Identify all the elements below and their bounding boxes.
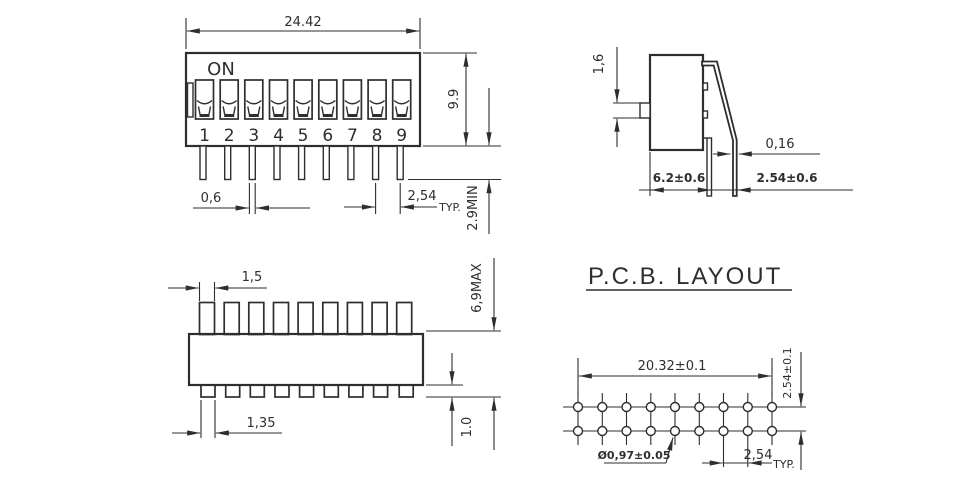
switch-actuator: [270, 80, 288, 119]
pcb-hole: [671, 427, 680, 436]
pin-tab: [399, 385, 413, 397]
pin: [200, 146, 206, 180]
actuator-tab: [249, 303, 264, 335]
side-notch: [703, 111, 708, 118]
switch-sliders: [196, 80, 411, 119]
dimension-pin-tab-height: 1.0: [426, 353, 475, 446]
dim-body-depth-label: 6.2±0.6: [653, 171, 706, 185]
pin: [274, 146, 280, 180]
position-number: 2: [224, 126, 235, 146]
switch-body-top: [189, 334, 423, 385]
dimension-pin-thickness: 0,16: [713, 137, 820, 154]
dim-actuator-width-label: 1,5: [242, 270, 263, 285]
dimension-row-pitch: 2.54±0.1: [780, 347, 806, 470]
dim-row-pitch-label: 2.54±0.1: [781, 347, 794, 398]
actuator-tab: [200, 303, 215, 335]
pin: [397, 146, 403, 180]
switch-actuator: [393, 80, 411, 119]
dim-body-height-label: 9.9: [447, 89, 462, 110]
actuator-tab: [298, 303, 313, 335]
pcb-hole: [574, 427, 583, 436]
switch-actuator: [319, 80, 337, 119]
dim-pin-thickness-label: 0,16: [766, 137, 795, 152]
pcb-hole: [598, 427, 607, 436]
switch-actuator: [343, 80, 361, 119]
dimension-pin-pitch: 2,54 TYP.: [344, 183, 461, 214]
position-number: 3: [248, 126, 259, 146]
dim-pin-pitch-label: 2,54: [408, 189, 437, 204]
pcb-hole: [622, 403, 631, 412]
straight-pin: [707, 138, 712, 196]
actuator-tab: [397, 303, 412, 335]
pcb-hole: [646, 427, 655, 436]
pin: [299, 146, 305, 180]
actuator-side: [640, 103, 650, 118]
pcb-title-pcb: P.C.B.: [588, 263, 666, 290]
polarity-notch: [188, 83, 194, 117]
pin-tab: [300, 385, 314, 397]
dimension-actuator-width: 1,5: [168, 270, 267, 301]
pin-tab: [374, 385, 388, 397]
dim-hole-pitch-qualifier: TYP.: [772, 458, 795, 471]
bottom-pin-tabs: [201, 385, 413, 397]
position-number: 5: [298, 126, 309, 146]
pcb-layout: P.C.B. LAYOUT 20.32±0.1: [563, 263, 806, 471]
pcb-hole: [646, 403, 655, 412]
pcb-hole: [695, 427, 704, 436]
actuator-tab: [372, 303, 387, 335]
position-number: 9: [396, 126, 407, 146]
switch-actuator: [294, 80, 312, 119]
pcb-hole: [695, 403, 704, 412]
pcb-hole: [743, 427, 752, 436]
pcb-hole: [574, 403, 583, 412]
pin: [225, 146, 231, 180]
switch-actuator: [368, 80, 386, 119]
pin: [249, 146, 255, 180]
pcb-hole: [719, 403, 728, 412]
dim-body-width-label: 24.42: [284, 15, 321, 30]
dimension-body-width: 24.42: [186, 15, 420, 49]
dim-pin-width-label: 0,6: [201, 191, 222, 206]
position-number: 6: [322, 126, 333, 146]
pin: [348, 146, 354, 180]
actuator-tab: [274, 303, 289, 335]
pcb-hole: [768, 403, 777, 412]
dim-overall-height-label: 6,9MAX: [470, 263, 485, 313]
dim-pin-protrusion-label: 2.9MIN: [466, 185, 481, 230]
pin-tab: [324, 385, 338, 397]
drawing-sheet: 24.42 ON 1 2 3 4 5 6 7 8 9: [0, 0, 960, 488]
pin: [373, 146, 379, 180]
pcb-hole: [671, 403, 680, 412]
actuator-tab: [347, 303, 362, 335]
pcb-hole: [719, 427, 728, 436]
dimension-actuator-height: 1,6: [592, 47, 651, 147]
dim-hole-pitch-label: 2,54: [744, 448, 773, 463]
dim-actuator-height-label: 1,6: [592, 54, 607, 75]
pcb-title-layout: LAYOUT: [676, 263, 782, 290]
position-number: 8: [372, 126, 383, 146]
dimension-pin-tab-width: 1,35: [172, 400, 282, 438]
position-number: 7: [347, 126, 358, 146]
side-notch: [703, 83, 708, 90]
on-label: ON: [207, 59, 235, 80]
pin-tab: [250, 385, 264, 397]
dim-hole-diameter-label: Ø0,97±0.05: [598, 449, 671, 462]
dimension-body-depth: 6.2±0.6 2.54±0.6: [639, 152, 853, 196]
pcb-hole: [743, 403, 752, 412]
dimension-hole-span: 20.32±0.1: [578, 358, 772, 396]
pcb-hole: [622, 427, 631, 436]
pin-tab: [275, 385, 289, 397]
position-number: 1: [199, 126, 210, 146]
dip-switch-technical-drawing: 24.42 ON 1 2 3 4 5 6 7 8 9: [0, 0, 960, 488]
pin: [323, 146, 329, 180]
switch-actuator: [245, 80, 263, 119]
top-actuator-tabs: [200, 303, 412, 335]
top-view: 1,5 6,9MAX 1.0 1,35: [168, 258, 501, 450]
pin-tab: [201, 385, 215, 397]
position-number: 4: [273, 126, 284, 146]
dimension-hole-pitch: 2,54 TYP.: [702, 448, 795, 471]
dimension-hole-diameter: Ø0,97±0.05: [598, 438, 673, 464]
dim-pin-tab-width-label: 1,35: [247, 416, 276, 431]
pin-tab: [226, 385, 240, 397]
dim-pin-spacing-label: 2.54±0.6: [757, 171, 818, 185]
actuator-tab: [224, 303, 239, 335]
position-numbers: 1 2 3 4 5 6 7 8 9: [199, 126, 407, 146]
pcb-hole: [598, 403, 607, 412]
actuator-tab: [323, 303, 338, 335]
pin-tab: [349, 385, 363, 397]
pcb-hole: [768, 427, 777, 436]
dim-pin-tab-height-label: 1.0: [460, 417, 475, 438]
side-view: 1,6 0,16 6.2±0.6 2.54±0.6: [592, 47, 853, 196]
front-pins: [200, 146, 403, 180]
dim-hole-span-label: 20.32±0.1: [638, 359, 707, 374]
switch-actuator: [220, 80, 238, 119]
dim-pin-pitch-qualifier: TYP.: [438, 201, 461, 214]
switch-actuator: [196, 80, 214, 119]
dimension-pin-width: 0,6: [193, 183, 310, 214]
front-view: 24.42 ON 1 2 3 4 5 6 7 8 9: [186, 15, 501, 234]
switch-body-side: [650, 55, 703, 150]
